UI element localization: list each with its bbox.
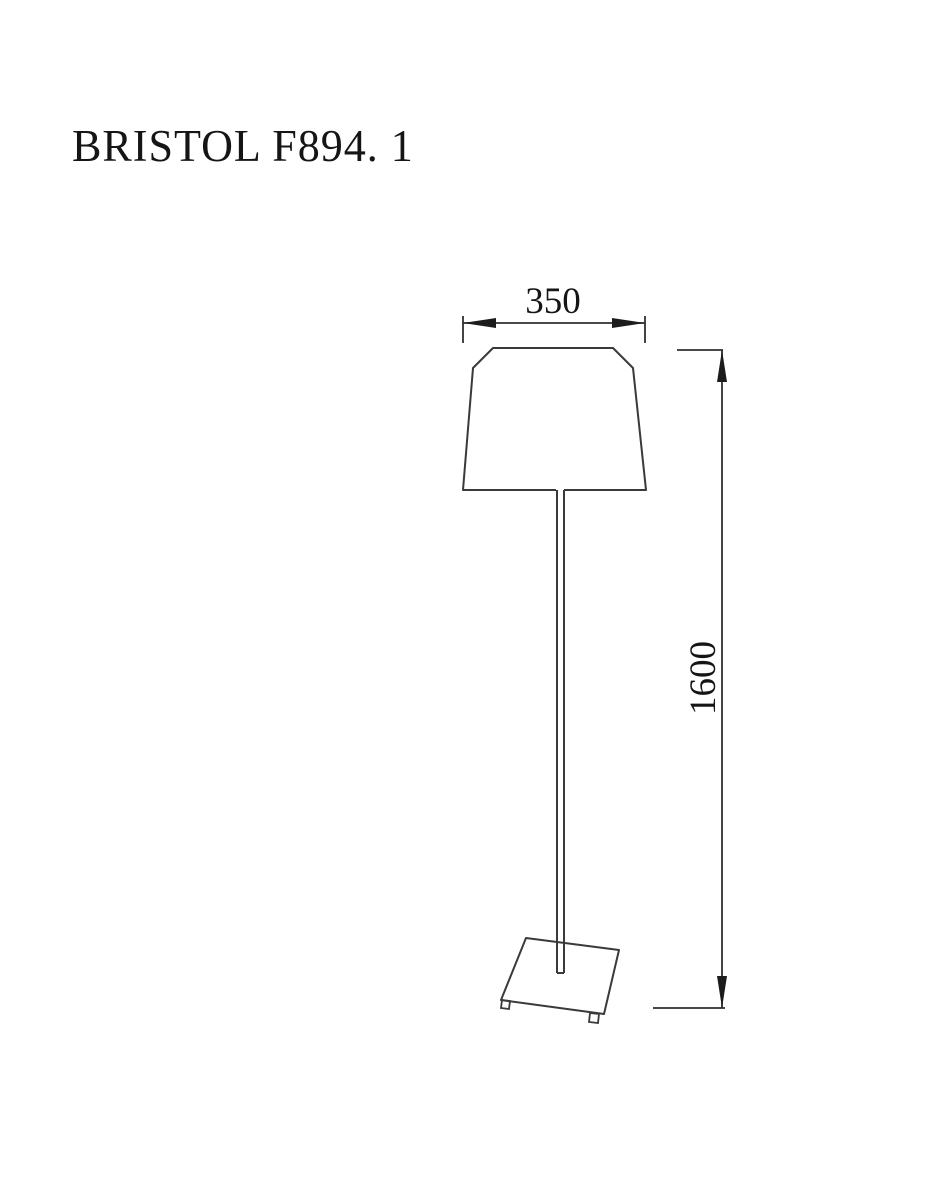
lamp-shade-outline (463, 348, 646, 490)
shade-width-dimension-label: 350 (460, 280, 646, 323)
floor-lamp-drawing (0, 0, 927, 1200)
base-foot-right (589, 1013, 599, 1023)
height-dim-arrow-down-icon (717, 976, 727, 1008)
lamp-base (501, 938, 619, 1014)
overall-height-dimension-label: 1600 (684, 618, 724, 738)
lamp-pole (557, 490, 564, 973)
technical-drawing-page: BRISTOL F894. 1 (0, 0, 927, 1200)
height-dim-arrow-up-icon (717, 350, 727, 382)
